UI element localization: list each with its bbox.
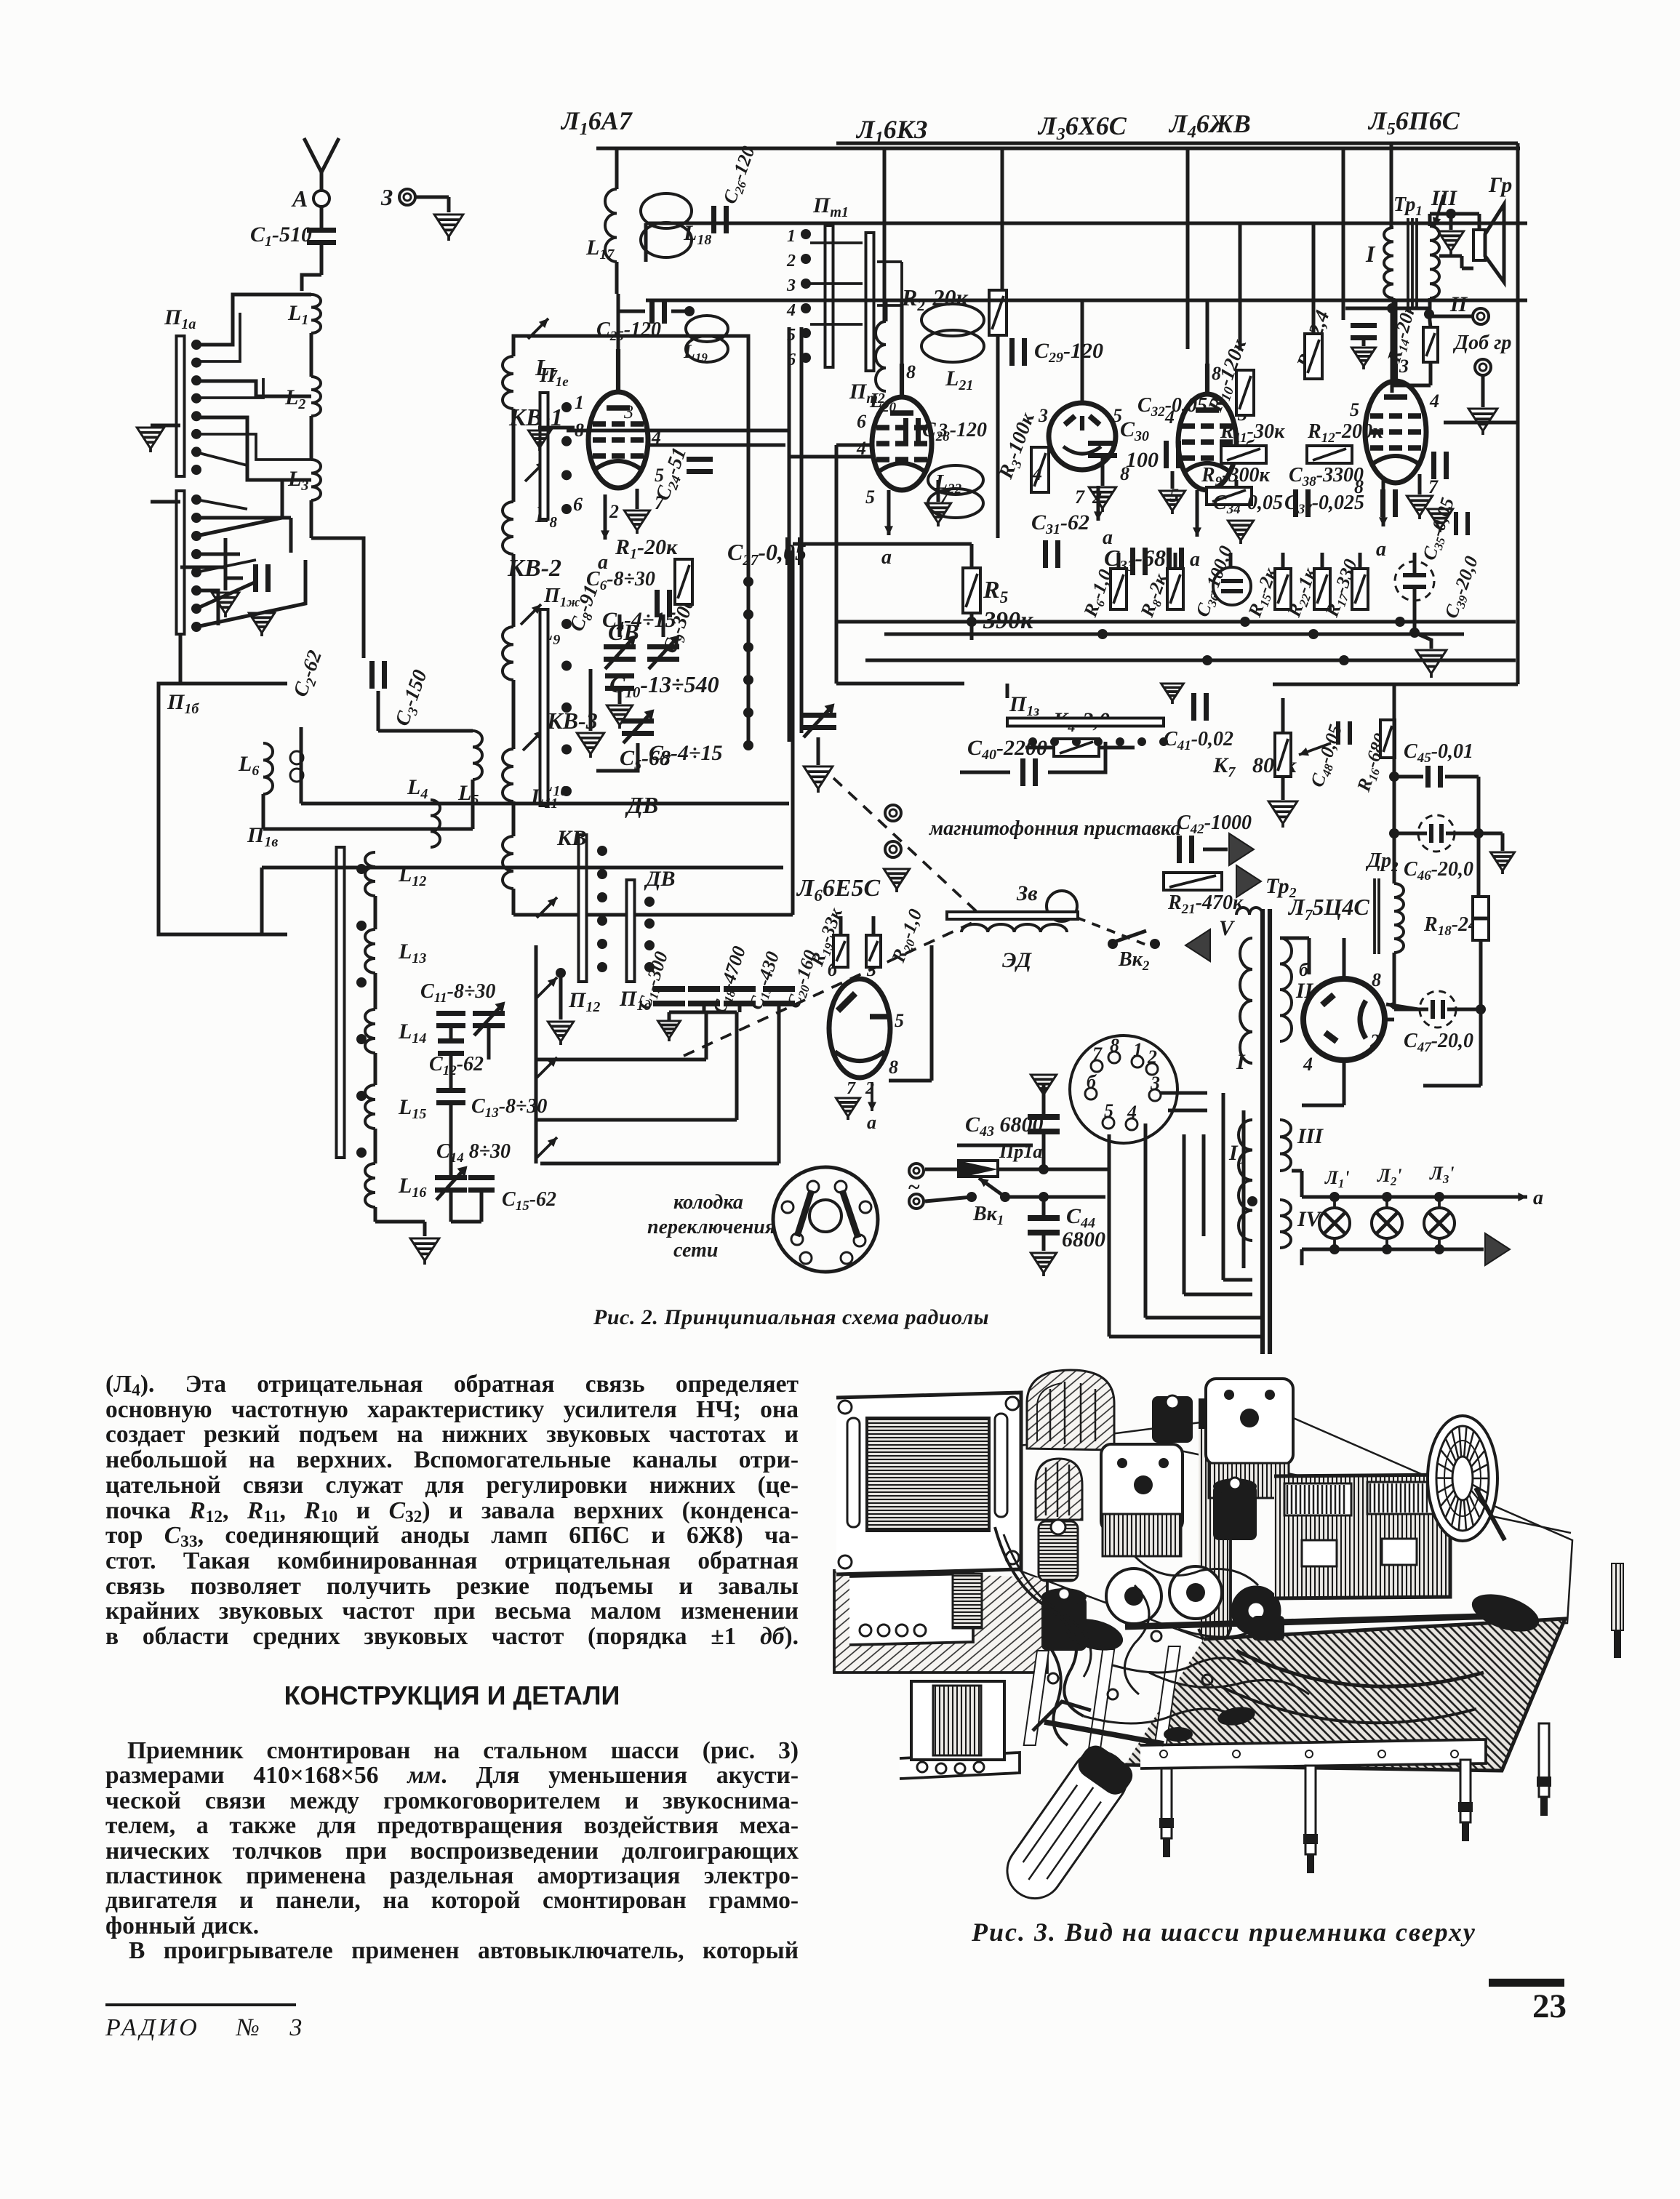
svg-text:L14​: L14​: [398, 1020, 426, 1046]
svg-text:а: а: [1376, 538, 1386, 561]
svg-text:I: I: [1236, 1050, 1246, 1074]
svg-text:П12​: П12​: [568, 988, 600, 1015]
svg-text:1: 1: [575, 392, 584, 413]
svg-text:R11​-30к: R11​-30к: [1220, 420, 1285, 446]
svg-text:L6​: L6​: [238, 752, 259, 779]
svg-text:а: а: [1190, 548, 1200, 571]
svg-text:3: 3: [1150, 1073, 1160, 1094]
svg-text:L18​: L18​: [683, 221, 711, 248]
svg-text:П1е​: П1е​: [539, 364, 569, 390]
svg-text:С46​-20,0: С46​-20,0: [1404, 858, 1473, 884]
svg-text:С2​-62: С2​-62: [289, 647, 329, 701]
svg-text:сети: сети: [673, 1239, 718, 1262]
svg-text:II: II: [1449, 292, 1468, 316]
svg-text:С11​-8÷30: С11​-8÷30: [420, 980, 495, 1006]
svg-text:С25​-120: С25​-120: [596, 319, 661, 344]
svg-text:L22​: L22​: [935, 471, 962, 497]
svg-text:5: 5: [895, 1010, 904, 1031]
svg-text:Л1​6А7: Л1​6А7: [560, 106, 633, 139]
svg-text:Л6​6Е5С: Л6​6Е5С: [796, 875, 881, 905]
svg-text:R1​-20к: R1​-20к: [615, 535, 678, 562]
svg-text:4: 4: [1303, 1054, 1313, 1075]
svg-text:С28​-120: С28​-120: [922, 419, 987, 444]
svg-text:Гр: Гр: [1488, 173, 1512, 197]
svg-text:П1з​: П1з​: [1009, 692, 1039, 719]
svg-text:4: 4: [1032, 463, 1042, 484]
svg-text:1: 1: [787, 227, 796, 246]
svg-text:1: 1: [1133, 1039, 1143, 1060]
svg-text:С39​-20,0: С39​-20,0: [1440, 553, 1484, 622]
svg-text:КВ: КВ: [556, 826, 586, 850]
svg-text:колодка: колодка: [673, 1191, 743, 1214]
svg-text:Л4​6ЖВ: Л4​6ЖВ: [1168, 109, 1251, 142]
svg-text:7: 7: [1092, 1044, 1103, 1065]
svg-text:L1​: L1​: [287, 301, 308, 328]
svg-text:П1б​: П1б​: [167, 690, 199, 717]
svg-text:7: 7: [1428, 476, 1439, 497]
svg-text:4: 4: [1127, 1102, 1137, 1123]
svg-text:L13​: L13​: [398, 940, 426, 966]
svg-text:С29​-120: С29​-120: [1034, 339, 1103, 366]
svg-text:5: 5: [1104, 1100, 1113, 1121]
svg-text:З: З: [380, 184, 393, 210]
svg-text:С42​-1000: С42​-1000: [1177, 812, 1252, 837]
svg-text:Тр1​: Тр1​: [1393, 193, 1423, 219]
svg-text:а: а: [1533, 1187, 1543, 1209]
svg-text:5: 5: [1113, 405, 1122, 426]
svg-text:Л3​': Л3​': [1429, 1163, 1455, 1186]
svg-text:V: V: [1219, 916, 1236, 940]
svg-text:С15​-62: С15​-62: [502, 1188, 556, 1214]
svg-text:К7​: К7​: [1212, 753, 1236, 780]
svg-text:а: а: [867, 1112, 876, 1133]
svg-text:С37​-0,025: С37​-0,025: [1284, 492, 1364, 517]
svg-text:Л3​6Х6С: Л3​6Х6С: [1037, 111, 1127, 144]
svg-text:L4​: L4​: [407, 775, 428, 802]
svg-text:~: ~: [908, 1175, 920, 1199]
svg-text:2: 2: [1147, 1046, 1157, 1068]
svg-text:3: 3: [786, 276, 796, 295]
svg-text:С3​-150: С3​-150: [391, 667, 434, 730]
svg-text:Л2​': Л2​': [1377, 1165, 1402, 1188]
svg-text:R5​: R5​: [983, 577, 1008, 606]
svg-text:7: 7: [1075, 486, 1085, 508]
svg-text:III: III: [1297, 1124, 1324, 1148]
svg-text:а: а: [598, 551, 608, 574]
svg-text:III: III: [1431, 186, 1457, 210]
svg-text:100: 100: [1126, 448, 1159, 472]
svg-text:П1а​: П1а​: [164, 305, 196, 332]
svg-text:КВ-3: КВ-3: [546, 708, 598, 734]
svg-text:L15​: L15​: [398, 1095, 426, 1122]
svg-text:Вк2​: Вк2​: [1118, 948, 1150, 974]
svg-text:С30​: С30​: [1120, 417, 1149, 444]
svg-text:L16​: L16​: [398, 1174, 426, 1201]
svg-text:Пт1​: Пт1​: [812, 193, 849, 220]
svg-text:L19​: L19​: [683, 341, 708, 364]
svg-text:ДВ: ДВ: [644, 867, 676, 891]
svg-text:П1д​: П1д​: [619, 987, 651, 1014]
svg-text:4: 4: [1429, 390, 1439, 412]
svg-text:L21​: L21​: [945, 366, 973, 393]
svg-text:2: 2: [1369, 1030, 1380, 1052]
svg-text:3: 3: [1038, 405, 1048, 426]
svg-text:магнитофонния приставка: магнитофонния приставка: [929, 817, 1181, 840]
svg-text:L2​: L2​: [284, 385, 305, 412]
svg-text:а: а: [881, 546, 892, 569]
svg-text:С34​-0,05: С34​-0,05: [1213, 492, 1283, 517]
svg-text:Л5​6П6С: Л5​6П6С: [1367, 106, 1460, 139]
svg-text:А: А: [291, 185, 308, 212]
svg-text:7: 7: [847, 1079, 856, 1098]
svg-text:6: 6: [857, 411, 866, 432]
svg-text:С14​ 8÷30: С14​ 8÷30: [436, 1140, 511, 1166]
svg-text:8: 8: [906, 361, 916, 382]
svg-text:Л7​5Ц4С: Л7​5Ц4С: [1287, 894, 1369, 924]
svg-text:6: 6: [573, 494, 583, 515]
svg-text:8: 8: [1354, 476, 1364, 497]
svg-text:ЭД: ЭД: [1002, 948, 1033, 972]
svg-text:С1​-510: С1​-510: [250, 223, 312, 249]
svg-text:R20​-1,0: R20​-1,0: [887, 906, 928, 966]
svg-text:8: 8: [1120, 463, 1129, 484]
svg-text:4: 4: [786, 301, 796, 320]
svg-text:б: б: [1087, 1071, 1097, 1092]
svg-text:С7​-4÷15: С7​-4÷15: [649, 741, 722, 768]
svg-text:С41​-0,02: С41​-0,02: [1164, 728, 1233, 753]
svg-text:2: 2: [609, 501, 619, 522]
svg-text:R21​-470к: R21​-470к: [1167, 892, 1244, 917]
svg-text:R9​-300к: R9​-300к: [1201, 464, 1271, 489]
svg-text:С12​-62: С12​-62: [429, 1053, 484, 1078]
svg-text:Доб гр: Доб гр: [1452, 332, 1511, 354]
svg-text:С47​-20,0: С47​-20,0: [1404, 1030, 1473, 1055]
svg-text:С48​-0,05: С48​-0,05: [1306, 722, 1348, 790]
svg-text:6800: 6800: [1062, 1227, 1105, 1251]
svg-text:С31​-62: С31​-62: [1031, 510, 1089, 537]
svg-text:С13​-8÷30: С13​-8÷30: [471, 1095, 547, 1121]
svg-text:R18​-24: R18​-24: [1423, 913, 1479, 939]
svg-text:С32​-0,05: С32​-0,05: [1137, 394, 1207, 420]
svg-text:С38​-3300: С38​-3300: [1289, 464, 1364, 489]
svg-text:СВ: СВ: [608, 619, 639, 645]
svg-text:С26​-120: С26​-120: [719, 143, 761, 207]
svg-text:8: 8: [1110, 1035, 1119, 1056]
svg-text:С45​-0,01: С45​-0,01: [1404, 740, 1473, 766]
svg-text:II: II: [1295, 979, 1314, 1003]
svg-text:8: 8: [889, 1057, 898, 1078]
svg-text:Л1​': Л1​': [1324, 1167, 1350, 1190]
svg-text:2: 2: [786, 252, 796, 271]
svg-text:5: 5: [1350, 399, 1359, 420]
svg-text:5: 5: [865, 486, 875, 508]
svg-text:Вк1​: Вк1​: [972, 1203, 1004, 1228]
svg-text:8: 8: [1372, 969, 1381, 990]
svg-text:3: 3: [623, 401, 633, 422]
svg-text:переключения: переключения: [647, 1216, 775, 1238]
svg-text:Зв: Зв: [1016, 881, 1038, 905]
svg-text:I: I: [1365, 241, 1376, 267]
